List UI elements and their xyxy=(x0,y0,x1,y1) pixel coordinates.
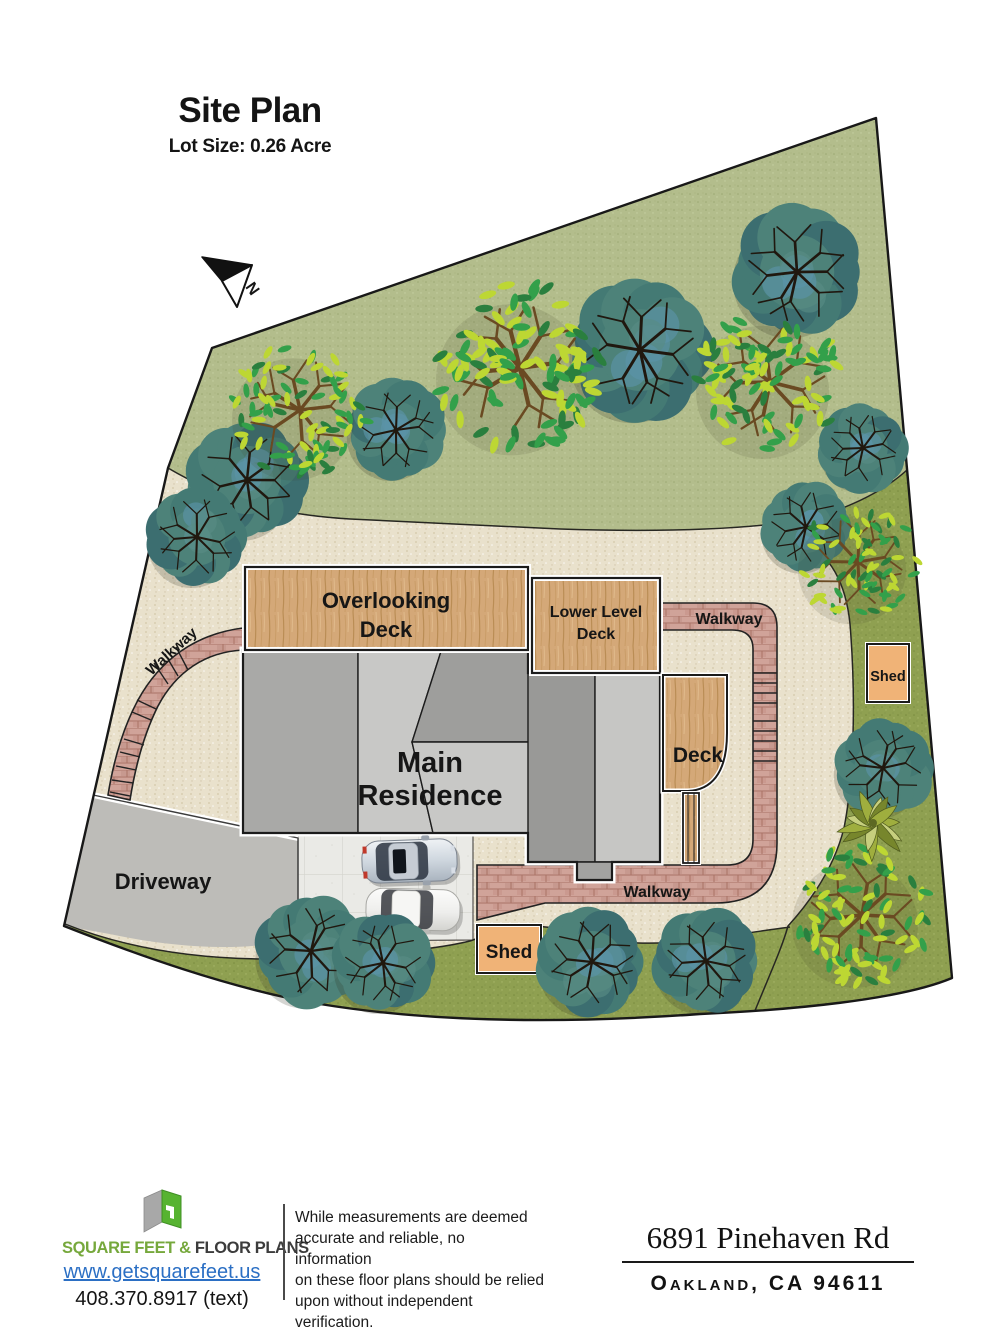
brand-name-green: SQUARE FEET & xyxy=(62,1239,191,1257)
brand-logo xyxy=(136,1186,188,1236)
shed-bottom-label: Shed xyxy=(486,942,532,963)
roof-plane xyxy=(528,673,595,862)
car-silver xyxy=(361,834,461,887)
disclaimer-line: on these floor plans should be relied xyxy=(295,1270,545,1291)
address-divider xyxy=(622,1261,914,1263)
property-address-block: 6891 Pinehaven Rd Oakland, CA 94611 xyxy=(608,1220,928,1296)
main-residence-label-2: Residence xyxy=(357,780,502,812)
address-street: 6891 Pinehaven Rd xyxy=(608,1220,928,1256)
phone-number: 408.370.8917 (text) xyxy=(62,1288,262,1311)
disclaimer-text: While measurements are deemed accurate a… xyxy=(295,1207,545,1333)
roof-plane xyxy=(243,650,358,833)
side-deck-label: Deck xyxy=(673,744,724,767)
tree-teal xyxy=(347,378,446,481)
brand-name-dark: FLOOR PLANS xyxy=(191,1239,309,1257)
disclaimer-line: upon without independent verification. xyxy=(295,1291,545,1333)
overlooking-deck-label-1: Overlooking xyxy=(322,588,450,613)
brand-name: SQUARE FEET & FLOOR PLANS xyxy=(62,1239,262,1258)
driveway-label: Driveway xyxy=(115,869,212,894)
disclaimer-line: accurate and reliable, no information xyxy=(295,1228,545,1270)
site-plan-canvas: N Overlooking Deck Lower Level Deck Main… xyxy=(0,0,1008,1344)
website-link[interactable]: www.getsquarefeet.us xyxy=(62,1261,262,1284)
walkway-bottom-label: Walkway xyxy=(624,884,691,901)
footer-divider xyxy=(283,1204,285,1300)
north-arrow: N xyxy=(202,257,262,307)
lower-level-deck-label-2: Deck xyxy=(577,626,615,643)
roof-step xyxy=(577,862,612,880)
overlooking-deck-label-2: Deck xyxy=(360,617,413,642)
walkway-right-label: Walkway xyxy=(696,611,763,628)
roof-plane xyxy=(595,673,660,862)
shed-right-label: Shed xyxy=(870,669,905,685)
address-city: Oakland, CA 94611 xyxy=(608,1272,928,1296)
deck-stairs xyxy=(683,793,699,863)
logo-gray-panel xyxy=(144,1190,162,1232)
site-plan-page: Site Plan Lot Size: 0.26 Acre xyxy=(0,0,1008,1344)
lower-level-deck-label-1: Lower Level xyxy=(550,604,642,621)
disclaimer-line: While measurements are deemed xyxy=(295,1207,545,1228)
footer-brand-block: SQUARE FEET & FLOOR PLANS www.getsquaref… xyxy=(62,1186,262,1311)
main-residence-label-1: Main xyxy=(397,747,463,779)
